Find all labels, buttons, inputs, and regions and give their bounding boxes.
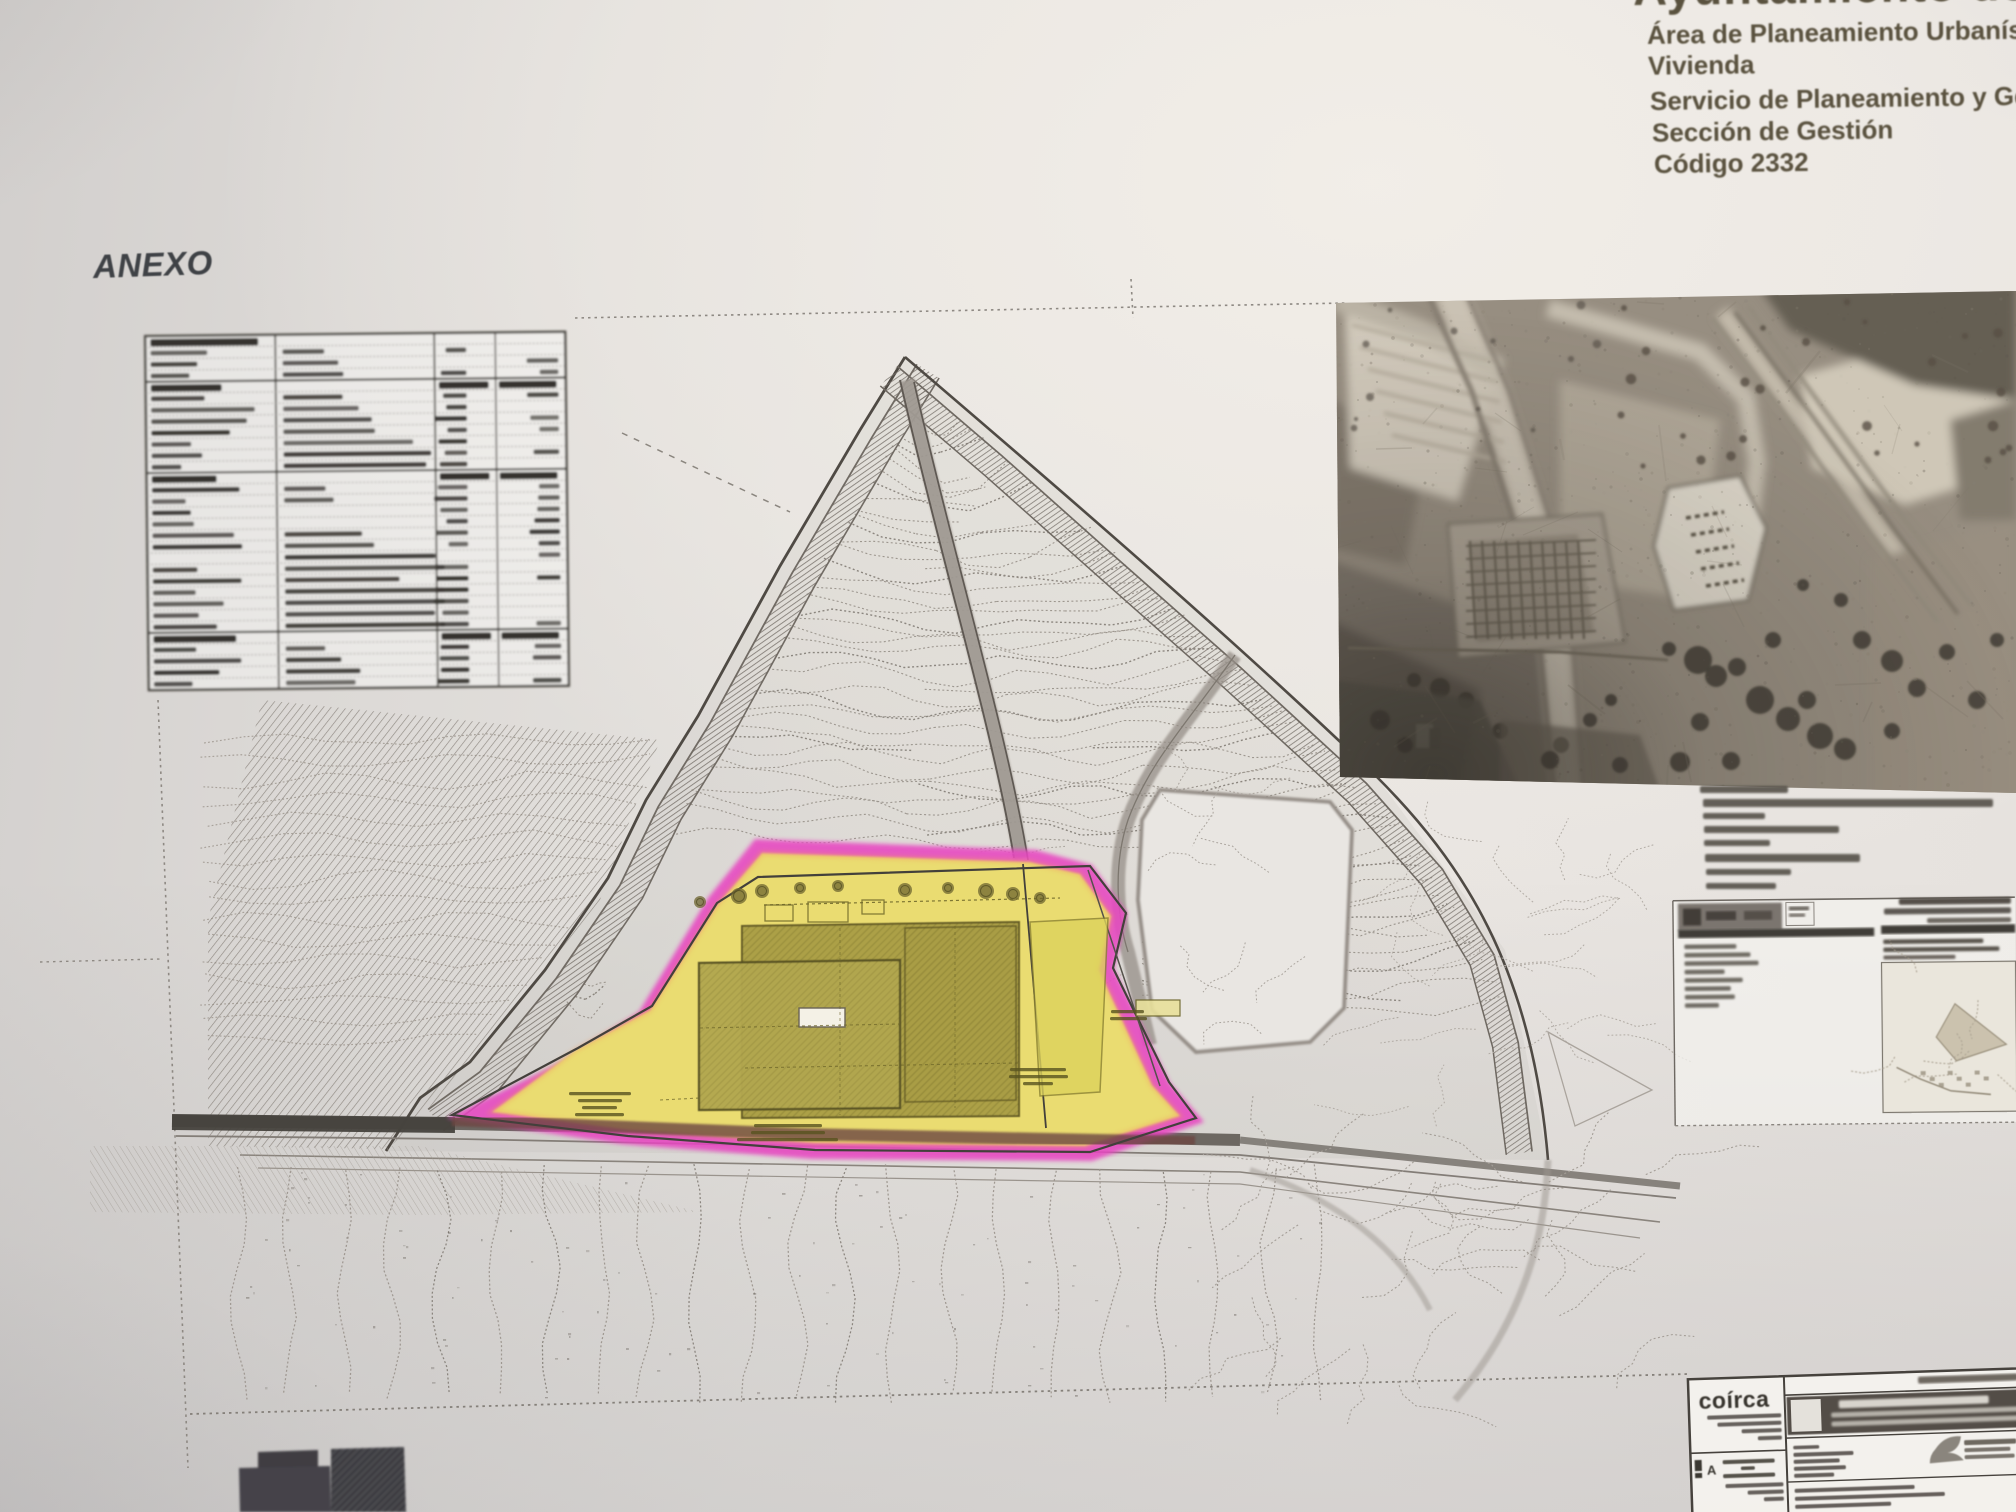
svg-text:coírca: coírca (1698, 1386, 1770, 1414)
svg-text:A: A (1707, 1462, 1717, 1477)
